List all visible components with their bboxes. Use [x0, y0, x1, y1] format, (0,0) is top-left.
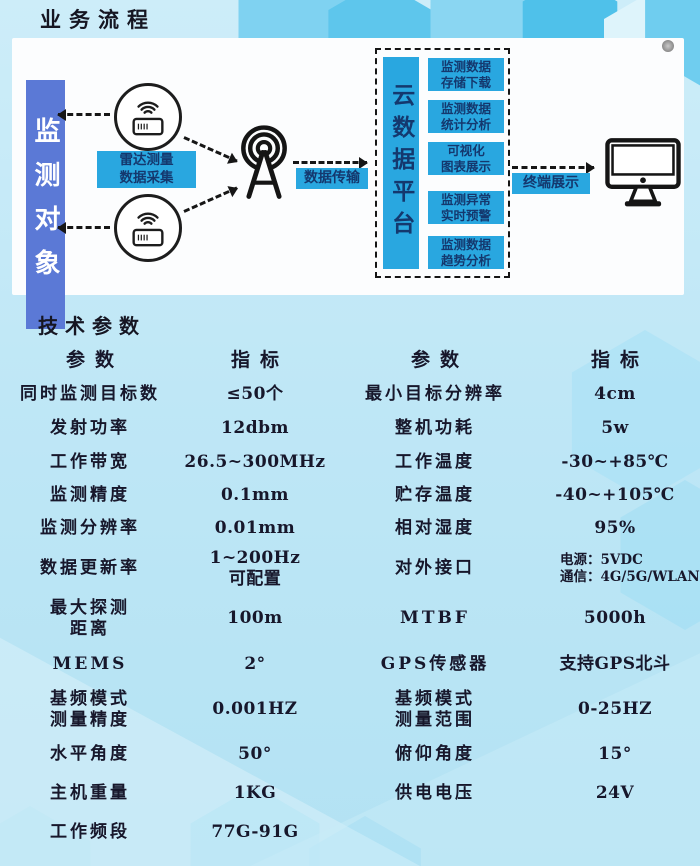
table-header-cell: 指标 [530, 344, 700, 378]
flow-diagram-panel: 监测对象 雷达测量 数据采集 [12, 38, 684, 295]
cloud-function-storage: 监测数据 存储下载 [428, 58, 504, 91]
cloud-function-trend: 监测数据 趋势分析 [428, 236, 504, 269]
arrow-to-object-top [58, 113, 110, 116]
value-cell: 12dbm [170, 412, 340, 446]
radar-collect-label: 雷达测量 数据采集 [97, 151, 196, 188]
param-cell: 整机功耗 [340, 412, 530, 446]
param-cell: GPS传感器 [340, 645, 530, 685]
value-cell: 95% [530, 512, 700, 545]
value-cell: 100m [170, 593, 340, 645]
value-cell: 5000h [530, 593, 700, 645]
value-cell: 15° [530, 735, 700, 775]
arrow-tower-to-cloud [293, 161, 367, 164]
param-cell: 最大探测 距离 [10, 593, 170, 645]
table-header-cell: 参数 [10, 344, 170, 378]
param-cell: 工作温度 [340, 446, 530, 480]
radar-node-bottom [114, 194, 182, 262]
param-cell: MTBF [340, 593, 530, 645]
arrow-to-object-bottom [58, 226, 110, 229]
value-cell: 50° [170, 735, 340, 775]
param-cell [340, 813, 530, 853]
param-cell: 对外接口 [340, 545, 530, 593]
cloud-function-statistics: 监测数据 统计分析 [428, 100, 504, 133]
value-cell: 0-25HZ [530, 685, 700, 735]
value-cell: 0.1mm [170, 480, 340, 512]
param-cell: 工作频段 [10, 813, 170, 853]
radar-node-top [114, 83, 182, 151]
value-cell: -40~+105℃ [530, 480, 700, 512]
value-cell: -30~+85℃ [530, 446, 700, 480]
param-cell: 供电电压 [340, 775, 530, 813]
table-header-cell: 参数 [340, 344, 530, 378]
radar-device-icon [123, 95, 173, 139]
value-cell: ≤50个 [170, 378, 340, 412]
param-cell: 工作带宽 [10, 446, 170, 480]
param-cell: 基频模式 测量范围 [340, 685, 530, 735]
value-cell: 1KG [170, 775, 340, 813]
value-cell: 0.001HZ [170, 685, 340, 735]
value-cell: 4cm [530, 378, 700, 412]
table-header-cell: 指标 [170, 344, 340, 378]
value-cell [530, 813, 700, 853]
param-cell: 相对湿度 [340, 512, 530, 545]
monitor-icon [603, 136, 683, 210]
param-cell: 数据更新率 [10, 545, 170, 593]
cloud-function-visualization: 可视化 图表展示 [428, 142, 504, 175]
value-cell: 支持GPS北斗 [530, 645, 700, 685]
param-cell: 水平角度 [10, 735, 170, 775]
cloud-function-alert: 监测异常 实时预警 [428, 191, 504, 224]
param-cell: 主机重量 [10, 775, 170, 813]
value-cell: 电源：5VDC 通信：4G/5G/WLAN [530, 545, 700, 593]
params-section-title: 技术参数 [38, 310, 146, 339]
arrow-cloud-to-terminal [512, 166, 594, 169]
value-cell: 0.01mm [170, 512, 340, 545]
flow-section-title: 业务流程 [40, 4, 156, 34]
cloud-platform-bar: 云数据平台 [383, 57, 419, 269]
param-cell: 同时监测目标数 [10, 378, 170, 412]
param-cell: 基频模式 测量精度 [10, 685, 170, 735]
value-cell: 1~200Hz 可配置 [170, 545, 340, 593]
param-cell: 贮存温度 [340, 480, 530, 512]
value-cell: 24V [530, 775, 700, 813]
param-cell: 监测精度 [10, 480, 170, 512]
broadcast-tower-icon [233, 122, 295, 202]
value-cell: 5w [530, 412, 700, 446]
value-cell: 26.5~300MHz [170, 446, 340, 480]
arrow-radar-bottom-to-tower [183, 187, 237, 213]
watermark-dot-icon [662, 40, 674, 52]
radar-device-icon [123, 206, 173, 250]
param-cell: 俯仰角度 [340, 735, 530, 775]
param-cell: 最小目标分辨率 [340, 378, 530, 412]
terminal-display-label: 终端展示 [512, 173, 590, 194]
value-cell: 77G-91G [170, 813, 340, 853]
param-cell: 发射功率 [10, 412, 170, 446]
parameters-table: 参数 指标 参数 指标 同时监测目标数 ≤50个 最小目标分辨率 4cm 发射功… [10, 344, 700, 853]
param-cell: 监测分辨率 [10, 512, 170, 545]
param-cell: MEMS [10, 645, 170, 685]
data-transfer-label: 数据传输 [296, 168, 368, 189]
value-cell: 2° [170, 645, 340, 685]
